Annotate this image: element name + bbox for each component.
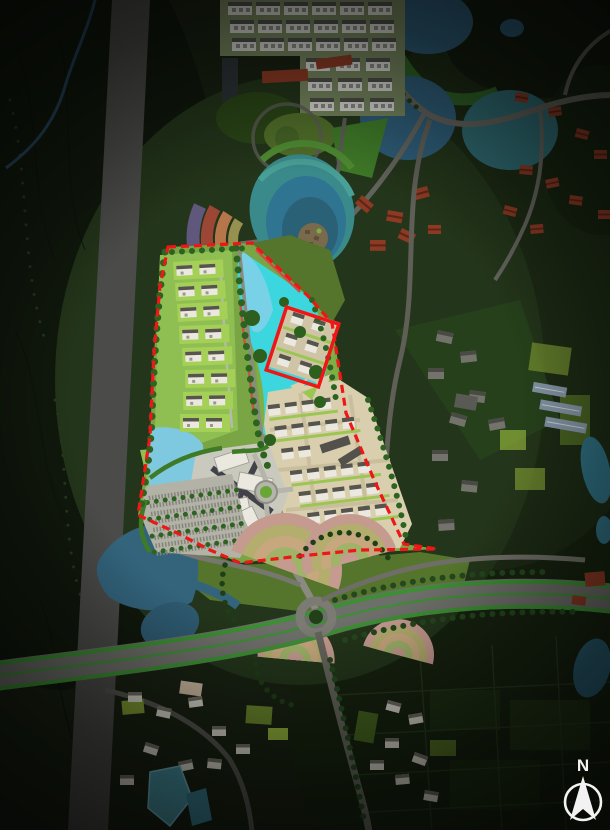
masterplan-map: N xyxy=(0,0,610,830)
compass-label: N xyxy=(577,756,589,775)
vignette-overlay xyxy=(0,0,610,830)
